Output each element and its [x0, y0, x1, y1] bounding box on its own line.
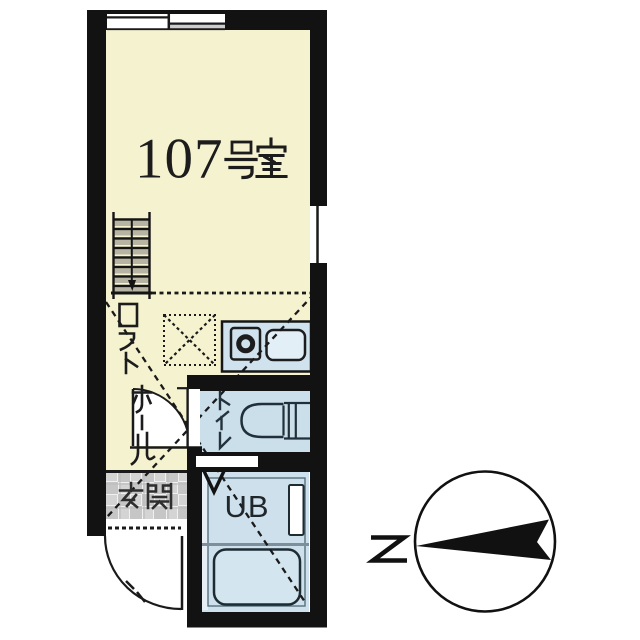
svg-text:UB: UB: [225, 489, 270, 524]
svg-text:107: 107: [135, 128, 224, 191]
